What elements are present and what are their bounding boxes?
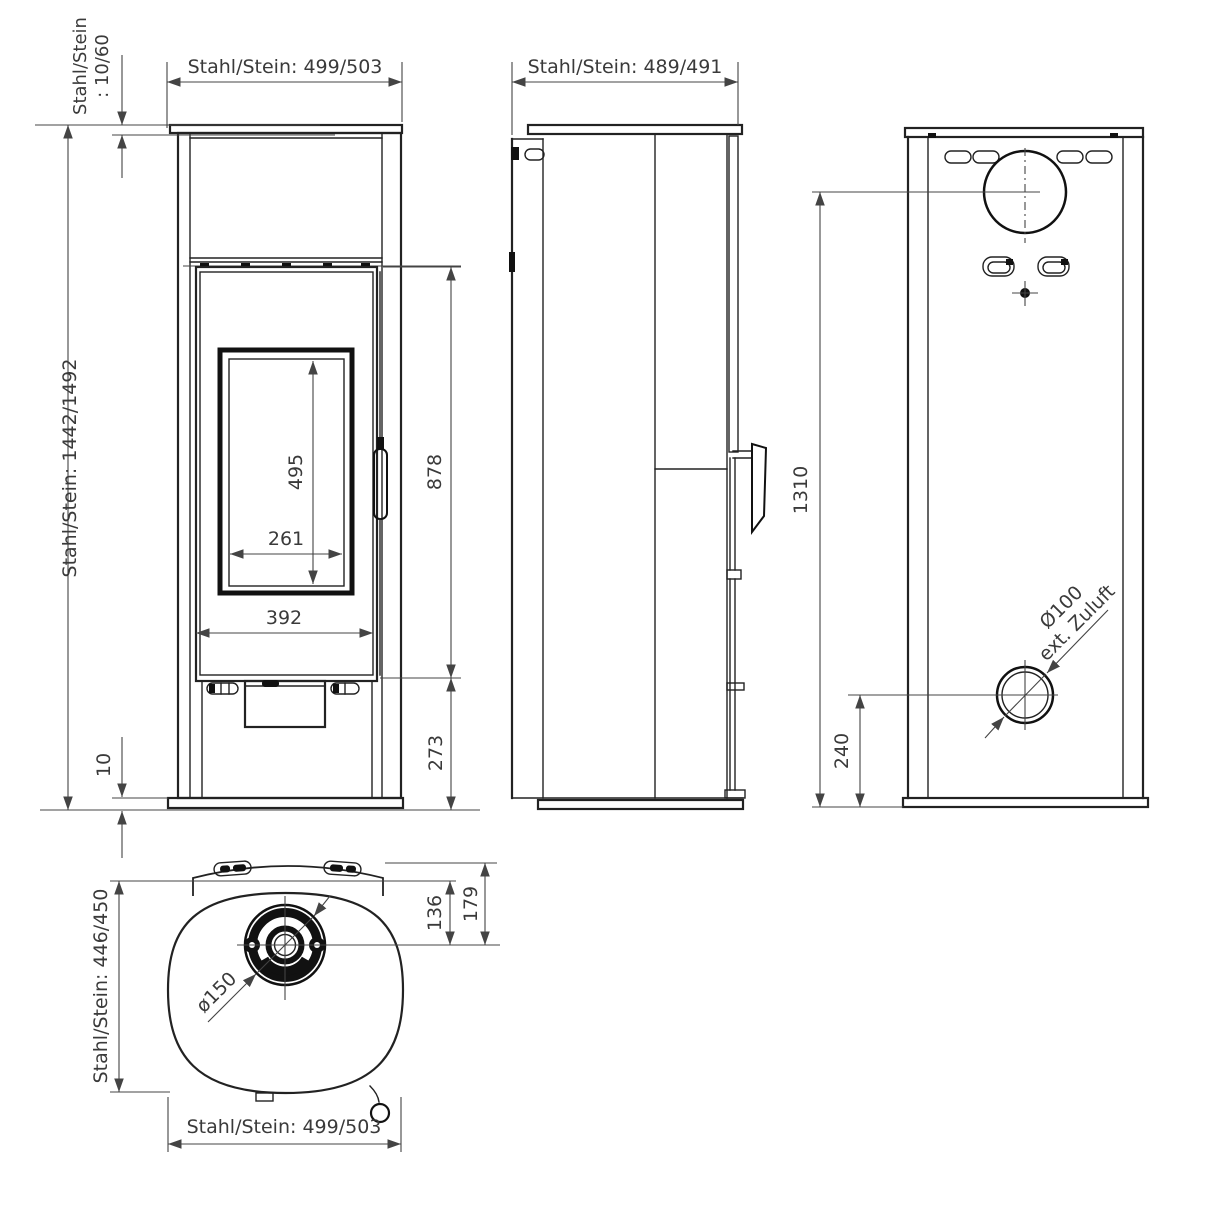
- front-width-dim-label: Stahl/Stein: 499/503: [188, 56, 383, 78]
- back-flue-height-dim-label: 1310: [790, 466, 812, 514]
- front-door-width-dim-label: 392: [266, 607, 302, 629]
- top-width-dim-label: Stahl/Stein: 499/503: [187, 1116, 382, 1138]
- back-view: Ø100 ext. Zuluft 1310 240: [790, 128, 1148, 807]
- front-plinth-dim-label: 273: [425, 735, 447, 771]
- front-handle-cap: [377, 437, 384, 449]
- back-top-plate: [905, 128, 1143, 137]
- front-plinth: [202, 680, 372, 798]
- front-base-plate: [168, 798, 403, 808]
- top-179-dim-label: 179: [460, 886, 482, 922]
- side-view-outline: [509, 125, 743, 809]
- side-view: Stahl/Stein: 489/491: [509, 56, 766, 809]
- front-topplate-dim-label-1: Stahl/Stein: [70, 17, 91, 115]
- side-bottom-block: [725, 790, 745, 798]
- front-view-outline: [40, 125, 480, 810]
- technical-drawing-canvas: Stahl/Stein: 499/503 Stahl/Stein: 1442/1…: [0, 0, 1214, 1214]
- front-height-dim-label: Stahl/Stein: 1442/1492: [59, 359, 81, 578]
- side-dimensions: Stahl/Stein: 489/491: [512, 56, 738, 135]
- top-136-dim-label: 136: [424, 895, 446, 931]
- front-dimensions: Stahl/Stein: 499/503 Stahl/Stein: 1442/1…: [35, 17, 461, 858]
- back-top-vent-slots: [945, 151, 1112, 163]
- front-top-plate: [170, 125, 402, 133]
- side-depth-dim-label: Stahl/Stein: 489/491: [528, 56, 723, 78]
- top-view: ø150 Stahl/Stein: 446/450 136 179 Stahl/…: [90, 861, 500, 1152]
- front-door-area-dim-label: 878: [424, 454, 446, 490]
- side-rear-latch: [509, 252, 515, 272]
- top-front-latch: [256, 1093, 273, 1101]
- side-rear-clip: [511, 147, 519, 160]
- front-ash-drawer: [245, 681, 325, 727]
- side-handle-foot: [727, 570, 741, 579]
- side-top-plate: [528, 125, 742, 134]
- front-center-latch: [262, 680, 279, 687]
- top-depth-dim-label: Stahl/Stein: 446/450: [90, 889, 112, 1084]
- front-glass-width-dim-label: 261: [268, 528, 304, 550]
- top-chain-line: [370, 1086, 379, 1102]
- side-door-front-strip: [729, 136, 738, 452]
- side-door-edge: [725, 136, 766, 798]
- front-base-gap-dim-label: 10: [93, 753, 115, 777]
- back-dimensions: 1310 240: [790, 192, 860, 807]
- front-glass-height-dim-label: 495: [285, 454, 307, 490]
- back-flue-outlet: [812, 148, 1066, 243]
- side-rear-slot: [525, 149, 544, 160]
- front-topplate-dim-label-2: : 10/60: [92, 34, 113, 98]
- side-base-plate: [538, 800, 743, 809]
- back-mid-slots: [983, 257, 1069, 306]
- side-handle-blade: [752, 444, 766, 532]
- back-air-inlet: Ø100 ext. Zuluft: [848, 565, 1119, 738]
- front-view: Stahl/Stein: 499/503 Stahl/Stein: 1442/1…: [35, 17, 480, 858]
- back-air-inlet-height-dim-label: 240: [831, 733, 853, 769]
- back-base-plate: [903, 798, 1148, 807]
- stove-dimension-drawing: Stahl/Stein: 499/503 Stahl/Stein: 1442/1…: [0, 0, 1214, 1214]
- back-view-outline: [812, 128, 1148, 807]
